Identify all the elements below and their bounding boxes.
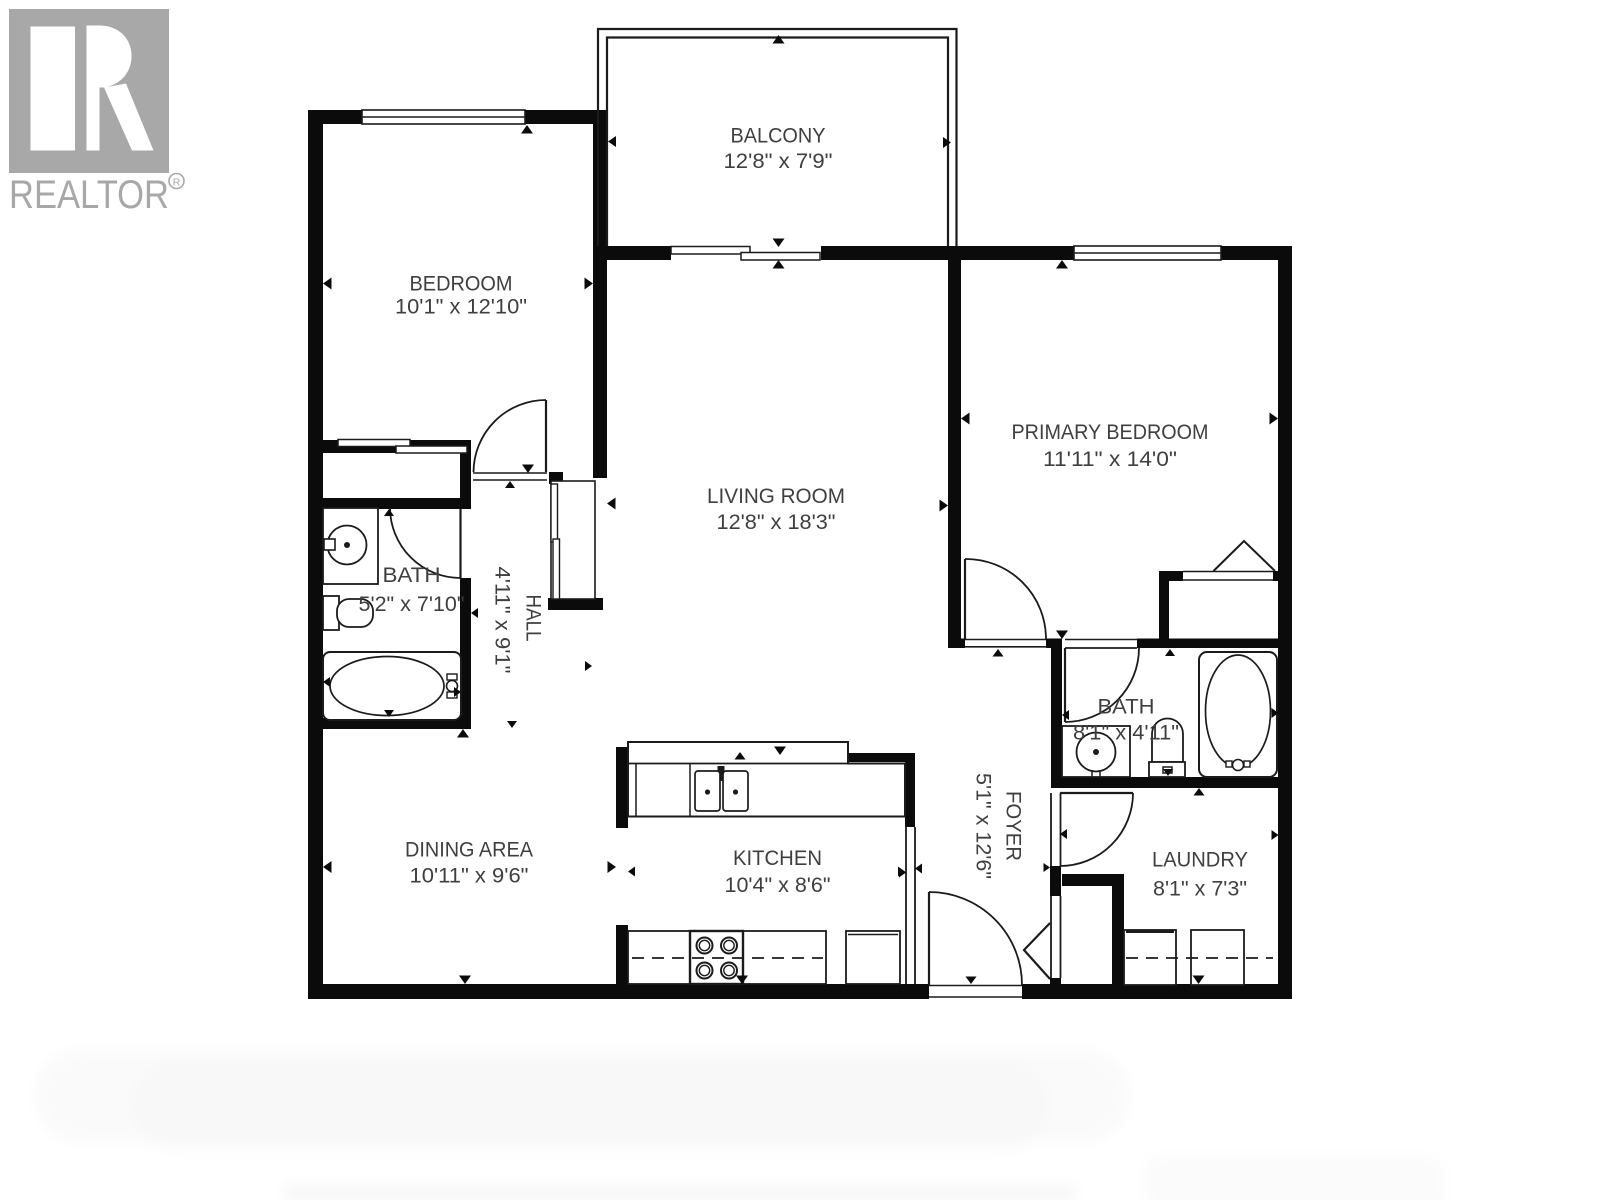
svg-text:KITCHEN: KITCHEN [733,846,822,870]
svg-text:5'2" x 7'10": 5'2" x 7'10" [359,592,465,616]
svg-text:R: R [173,177,181,189]
svg-text:HALL: HALL [522,595,546,642]
svg-text:REALTOR: REALTOR [9,173,169,217]
svg-text:BALCONY: BALCONY [731,124,826,148]
svg-text:BATH: BATH [1098,695,1155,719]
svg-text:5'1" x 12'6": 5'1" x 12'6" [972,773,996,879]
svg-text:8'1" x 7'3": 8'1" x 7'3" [1153,877,1247,901]
svg-text:12'8" x 18'3": 12'8" x 18'3" [717,510,836,534]
svg-text:LAUNDRY: LAUNDRY [1152,848,1248,872]
svg-text:DINING AREA: DINING AREA [405,838,534,862]
svg-text:10'1" x 12'10": 10'1" x 12'10" [395,295,527,319]
svg-text:11'11" x 14'0": 11'11" x 14'0" [1043,447,1177,471]
svg-text:PRIMARY BEDROOM: PRIMARY BEDROOM [1012,420,1209,444]
svg-text:12'8" x 7'9": 12'8" x 7'9" [724,149,833,173]
svg-text:BATH: BATH [383,563,441,587]
svg-text:FOYER: FOYER [1002,791,1026,861]
svg-text:10'4" x 8'6": 10'4" x 8'6" [725,873,831,897]
svg-text:10'11" x 9'6": 10'11" x 9'6" [410,864,529,888]
svg-text:LIVING ROOM: LIVING ROOM [707,484,845,508]
svg-text:BEDROOM: BEDROOM [410,272,513,296]
svg-text:8'1" x 4'11": 8'1" x 4'11" [1073,721,1179,745]
svg-text:4'11" x 9'1": 4'11" x 9'1" [491,567,515,674]
